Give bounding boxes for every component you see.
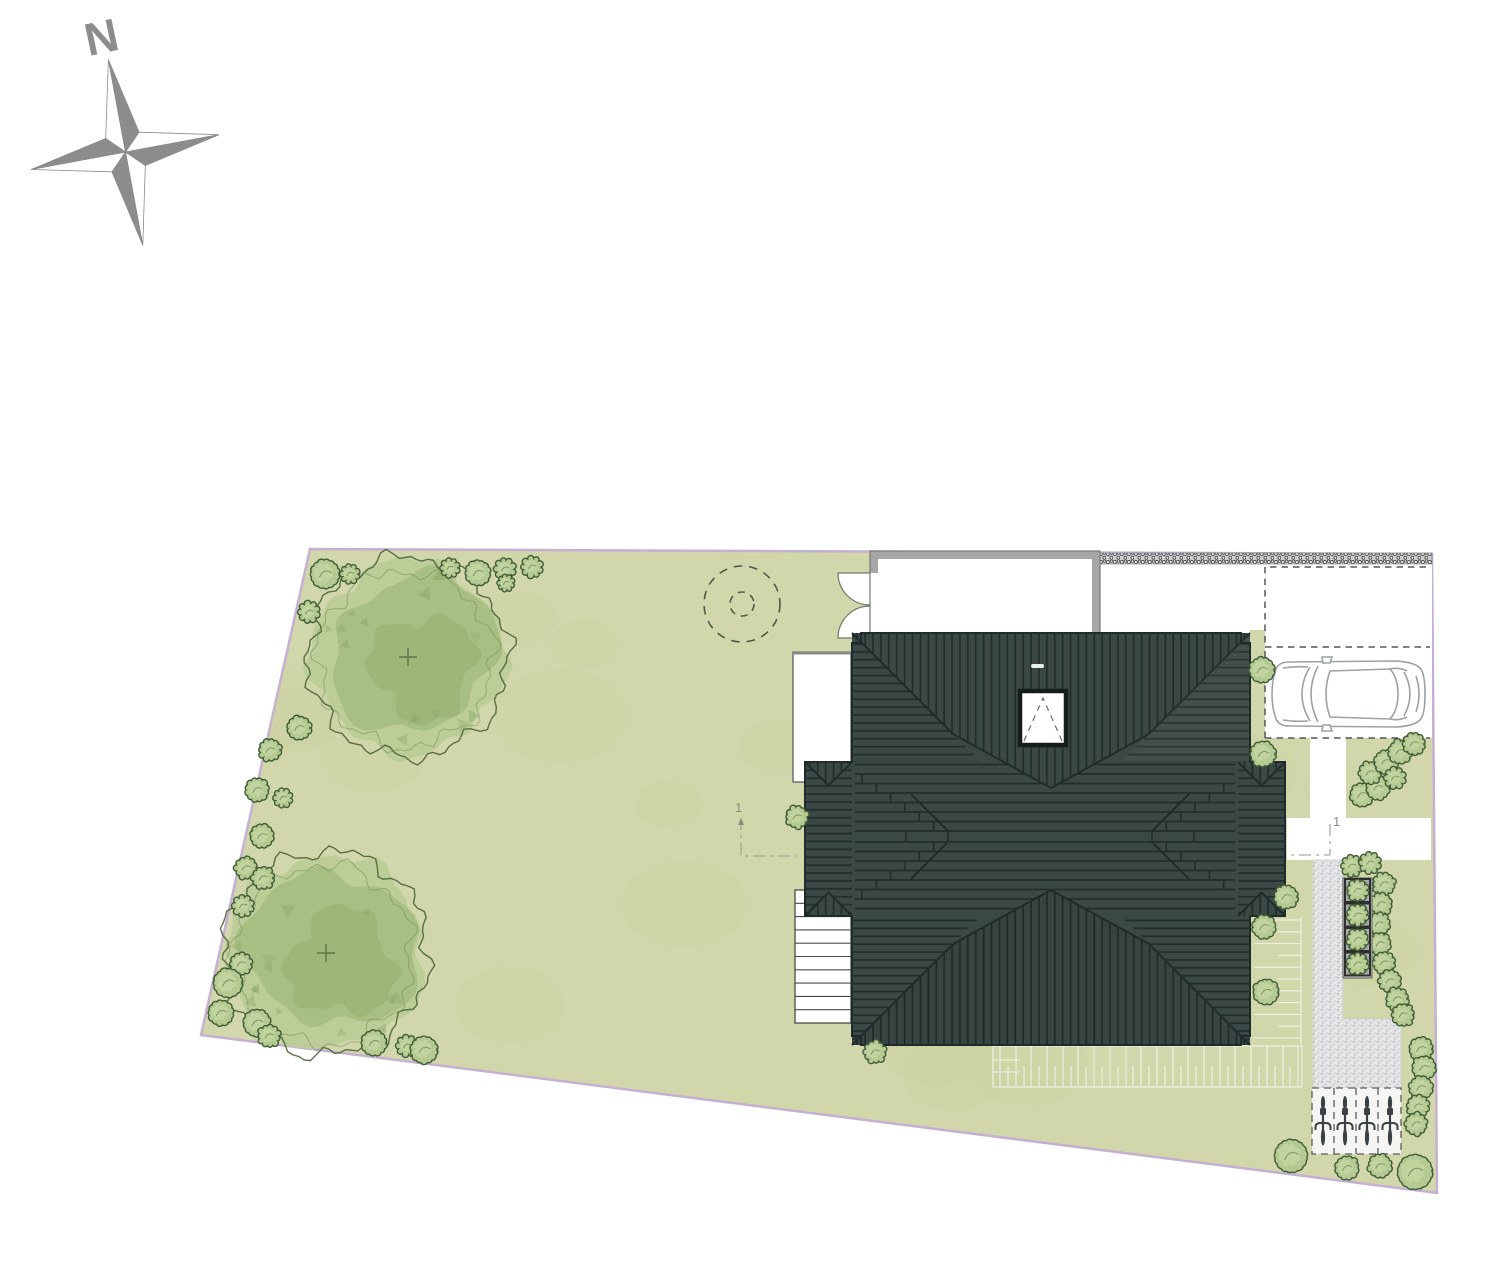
svg-text:1: 1 [1333,814,1340,829]
svg-text:N: N [80,8,123,66]
svg-text:1: 1 [735,800,742,815]
